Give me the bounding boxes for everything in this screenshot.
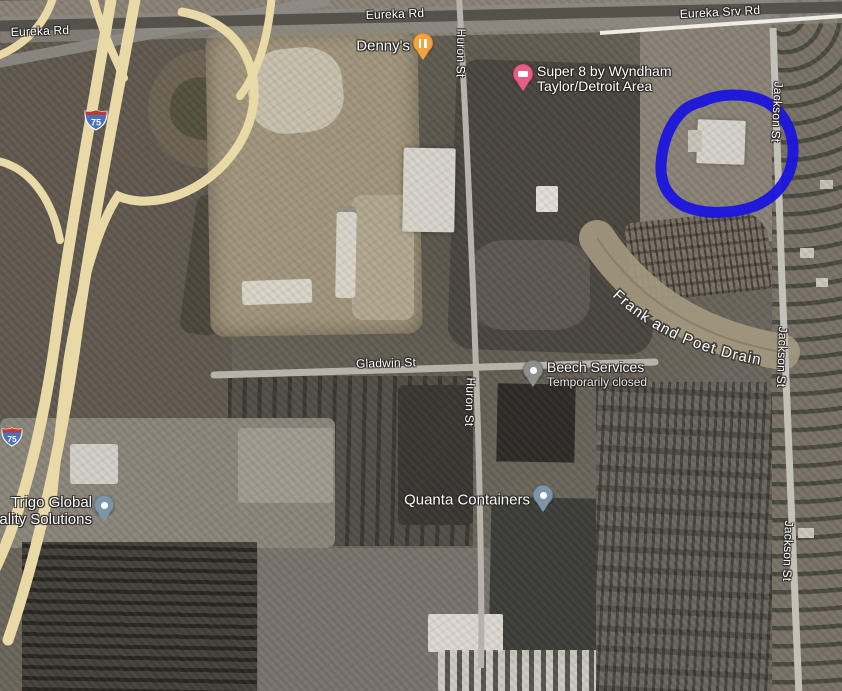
trigo-label[interactable]: Trigo Global uality Solutions — [0, 494, 92, 528]
quanta-containers-label[interactable]: Quanta Containers — [404, 493, 530, 508]
trigo-label-line1: Trigo Global — [0, 494, 92, 511]
road-label-huron-st-south: Huron St — [462, 377, 478, 426]
road-label-eureka-rd-west: Eureka Rd — [11, 23, 70, 39]
dennys-label[interactable]: Denny's — [356, 39, 410, 54]
svg-text:75: 75 — [7, 434, 17, 444]
quanta-containers-pin[interactable] — [533, 485, 553, 512]
super8-label-line2: Taylor/Detroit Area — [537, 79, 672, 94]
beech-services-name: Beech Services — [547, 360, 647, 375]
beech-services-label[interactable]: Beech Services Temporarily closed — [547, 360, 647, 390]
restaurant-pin-icon — [413, 33, 433, 53]
super8-label-line1: Super 8 by Wyndham — [537, 64, 672, 79]
huron-st-road — [459, 0, 481, 668]
generic-pin-icon — [533, 485, 553, 505]
generic-pin-icon — [523, 360, 543, 380]
i75-shield-south: 75 — [1, 427, 23, 447]
road-label-huron-st-north: Huron St — [454, 28, 469, 77]
dennys-pin[interactable] — [413, 33, 433, 60]
i75-ramp-west — [0, 160, 60, 240]
beech-services-status: Temporarily closed — [547, 375, 647, 390]
hotel-pin-icon — [513, 64, 533, 84]
i75-loop-ramp — [52, 12, 254, 502]
svg-text:75: 75 — [91, 118, 101, 128]
generic-pin-icon — [94, 495, 114, 515]
road-label-eureka-rd-center: Eureka Rd — [366, 6, 425, 22]
i75-shield-north: 75 — [84, 109, 108, 131]
road-label-gladwin-st: Gladwin St — [356, 355, 416, 371]
trigo-pin[interactable] — [94, 495, 114, 522]
super8-pin[interactable] — [513, 64, 533, 91]
map-canvas[interactable]: Frank and Poet Drain 75 75 Eureka Rd Eur… — [0, 0, 842, 691]
roads-layer: Frank and Poet Drain — [0, 0, 842, 691]
super8-label[interactable]: Super 8 by Wyndham Taylor/Detroit Area — [537, 64, 672, 94]
trigo-label-line2: uality Solutions — [0, 511, 92, 528]
beech-services-pin[interactable] — [523, 360, 543, 387]
road-label-jackson-st-mid: Jackson St — [774, 326, 790, 387]
road-label-jackson-st-south: Jackson St — [780, 520, 796, 581]
